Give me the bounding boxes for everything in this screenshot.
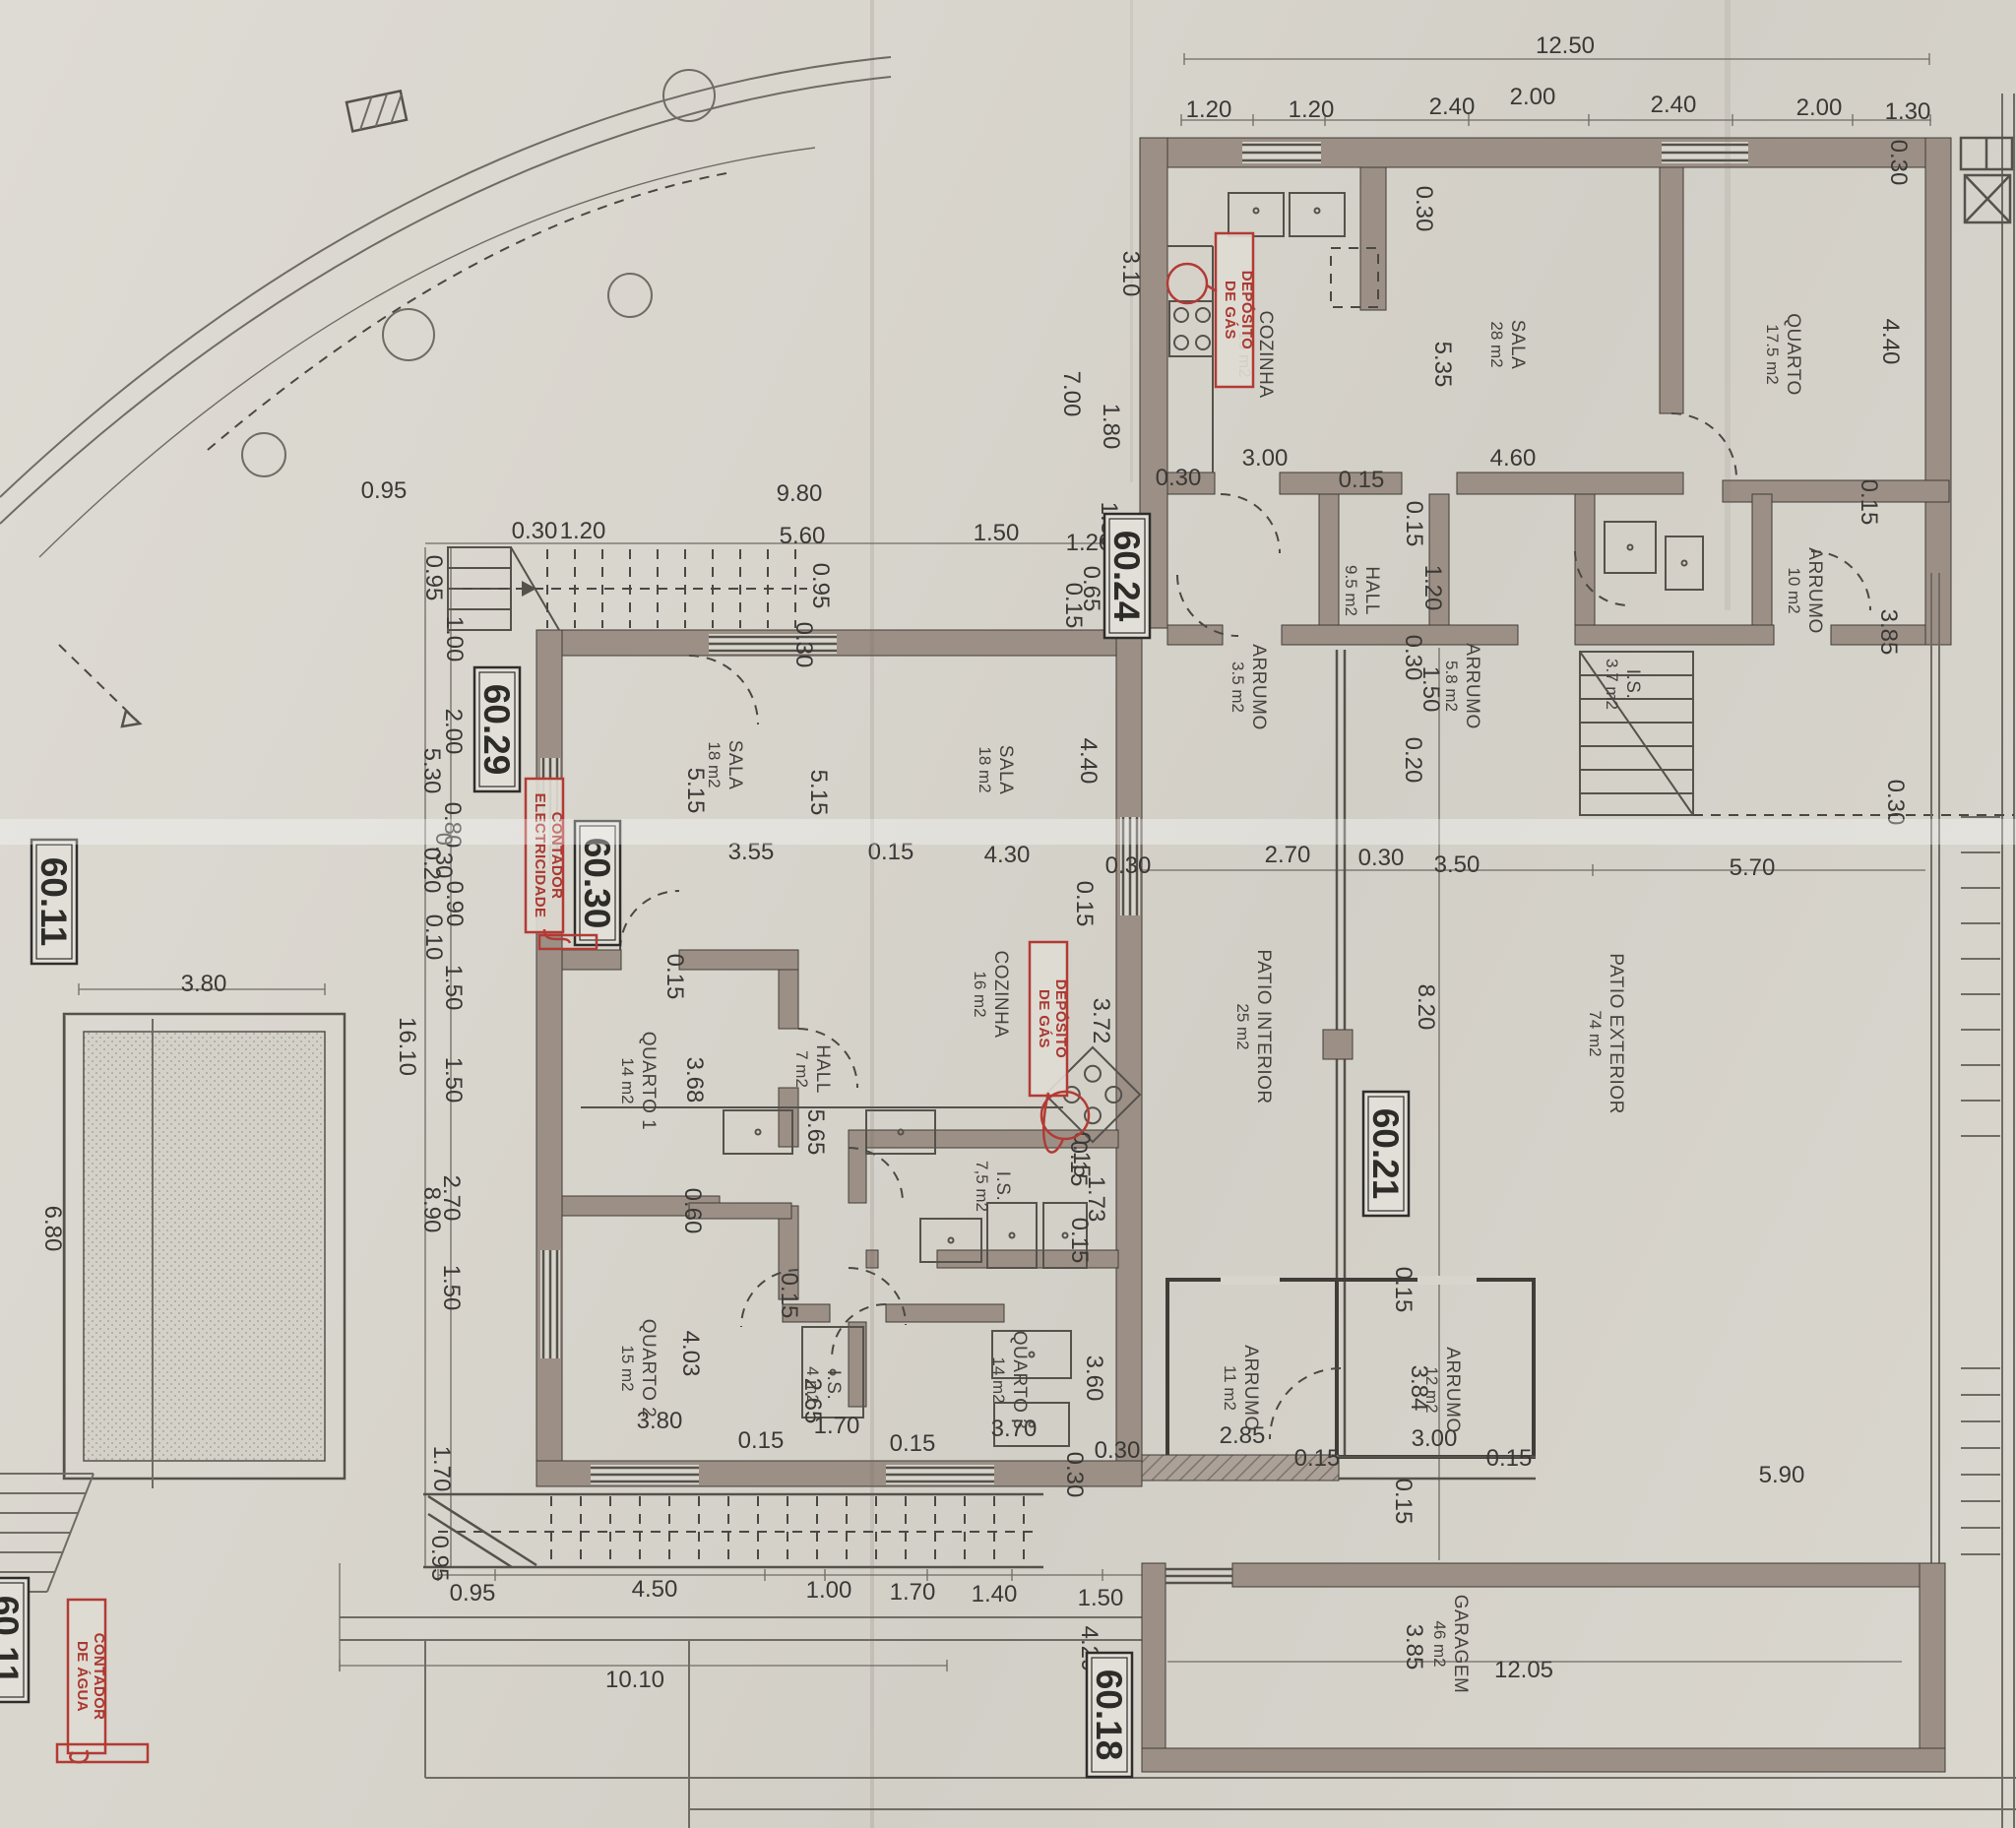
room-area: 25 m2 [1233,1003,1252,1049]
room-name: PATIO EXTERIOR [1606,953,1626,1114]
dimension-label: 0.30 [1411,186,1437,232]
dimension-label: 0.30 [1885,140,1912,186]
dimension-label: 1.70 [814,1413,860,1439]
dimension-label: 3.00 [1242,445,1289,472]
dimension-label: 0.15 [1486,1445,1533,1472]
garden-steps [0,1474,94,1592]
room-name: PATIO INTERIOR [1253,949,1274,1103]
dimension-label: 4.50 [632,1576,678,1603]
dimension-label: 2.00 [1510,84,1556,110]
transformer-symbol [1961,138,2012,222]
dimension-label: 5.35 [1429,342,1456,388]
floor-plan-sheet: 12.501.201.202.402.002.402.001.303.107.0… [0,0,2016,1828]
dimension-label: 5.30 [418,748,445,794]
room-name: GARAGEM [1450,1595,1471,1694]
tree-symbol [608,274,652,317]
room-area: 3.7 m2 [1603,659,1621,710]
dimension-label: 2.70 [1265,842,1311,868]
dimension-label: 1.20 [560,518,606,544]
tree-symbol [383,309,434,360]
room-area: 14 m2 [618,1057,637,1103]
room-name: HALL [812,1044,833,1094]
exterior-stairs-upper [1580,652,2014,815]
elevation-value: 60.18 [1089,1670,1129,1761]
dimension-label: 0.15 [661,954,688,1000]
dimension-label: 0.95 [807,563,834,609]
dimension-label: 0.15 [1071,881,1098,927]
room-name: SALA [724,740,745,790]
room-name: QUARTO 2 [638,1319,659,1418]
dimension-label: 0.15 [1294,1445,1341,1472]
tree-symbol [242,433,285,476]
dimension-label: 1.50 [440,1057,467,1103]
deposito-gas-2-label: DEPÓSITODE GÁS [1030,942,1070,1096]
room-name: I.S. [992,1171,1013,1202]
elevation-marker: 60.21 [1363,1092,1409,1216]
dimension-label: 0.15 [1339,467,1385,493]
room-area: 28 m2 [1487,321,1506,367]
dimension-label: 0.20 [418,848,445,894]
dimension-label: 0.20 [1400,737,1426,784]
dimension-label: 0.95 [450,1580,496,1607]
dimension-label: 0.30 [512,518,558,544]
dimension-label: 0.15 [890,1430,936,1457]
dimension-label: 0.15 [1401,501,1427,547]
dimension-label: 1.20 [1186,96,1232,123]
elevation-value: 60.30 [577,838,617,929]
room-name: SALA [1507,320,1528,370]
gas-tank-symbol [1167,264,1207,303]
dimension-label: 4.03 [677,1331,704,1377]
window [1662,142,1748,163]
room-area: 10 m2 [1785,567,1803,613]
dimension-label: 0.15 [776,1273,802,1319]
dimension-label: 0.30 [1358,845,1405,871]
room-area: 16 m2 [971,971,989,1017]
room-area: 18 m2 [705,741,724,788]
utility-label-line: DEPÓSITO [1052,979,1070,1058]
upper-bath-fixtures [1605,522,1703,590]
dimension-label: 3.85 [1875,609,1902,656]
paper-folds [0,0,2016,1828]
dimension-label: 0.95 [426,1536,453,1582]
dimension-label: 0.95 [361,477,408,504]
neighbor-hatch-upper [1961,817,2000,1136]
room-name: HALL [1361,566,1382,615]
floor-plan-svg: 12.501.201.202.402.002.402.001.303.107.0… [0,0,2016,1828]
room-area: 3.5 m2 [1228,662,1247,713]
dimension-label: 0.15 [1066,1218,1093,1264]
utility-label-line: DE GÁS [1222,281,1238,340]
contador-electricidade-label: CONTADORELECTRICIDADE [526,779,565,932]
dimension-label: 1.20 [1289,96,1335,123]
dimension-label: 1.50 [440,965,467,1011]
dimension-label: 3.72 [1088,998,1114,1044]
dimension-label: 0.60 [679,1188,706,1234]
dimension-label: 1.70 [890,1579,936,1606]
dimension-label: 0.15 [1856,479,1882,526]
dimension-label: 0.30 [1105,852,1152,879]
dimension-label: 4.60 [1490,445,1537,472]
dimension-label: 1.20 [1419,565,1446,611]
dimension-label: 3.50 [1434,851,1480,878]
room-area: 18 m2 [976,746,994,792]
pool [59,645,345,1488]
elevation-marker: 60.18 [1087,1653,1132,1777]
room-name: ARRUMO [1240,1345,1261,1430]
room-area: 74 m2 [1586,1010,1605,1056]
dimension-label: 9.80 [777,480,823,507]
dimension-label: 1.70 [428,1446,455,1492]
utility-label-line: DE GÁS [1036,989,1052,1048]
dimension-label: 0.30 [790,622,817,668]
utility-label-line: DE ÁGUA [74,1641,91,1712]
dimension-label: 7.00 [1058,371,1085,417]
entrance-stairs [448,547,807,630]
room-area: 5.8 m2 [1442,661,1461,712]
dimension-label: 2.40 [1651,92,1697,118]
elevation-marker: 60.29 [474,667,520,791]
dimension-label: 3.68 [681,1057,708,1103]
right-boundary [1961,94,2014,1828]
room-area: 4 m2 [803,1366,822,1404]
dimension-label: 3.85 [1401,1624,1427,1670]
dimension-label: 0.30 [1156,465,1202,491]
room-name: ARRUMO [1442,1347,1463,1432]
dimension-label: 0.15 [1390,1267,1417,1313]
room-name: QUARTO [1783,313,1803,396]
room-name: ARRUMO [1804,547,1825,633]
elevation-value: 60.29 [476,684,517,776]
utility-label-line: DEPÓSITO [1238,271,1256,349]
dimension-label: 12.50 [1536,32,1595,59]
dimension-label: 0.30 [1882,780,1909,826]
window [540,1250,560,1358]
dimension-label: 5.60 [780,523,826,549]
dimension-label: 3.80 [181,971,227,997]
utility-label-line: ELECTRICIDADE [532,793,548,918]
dimension-label: 0.15 [1060,583,1087,629]
room-area: 12 m2 [1422,1366,1441,1413]
dimension-label: 1.50 [1078,1585,1124,1611]
room-area: 7 m2 [792,1050,811,1088]
dimension-label: 5.70 [1730,854,1776,881]
dimension-label: 8.90 [418,1187,445,1233]
dimension-label: 3.60 [1081,1355,1107,1402]
dimension-label: 0.30 [1061,1452,1088,1498]
dimension-label: 5.65 [802,1109,829,1156]
dimension-label: 1.30 [1885,98,1931,125]
elevation-marker: 60.11 [31,840,77,964]
room-area: 14 m2 [989,1356,1008,1403]
garage-door [1165,1569,1232,1583]
elevation-marker: 60.24 [1104,514,1150,638]
room-area: 7,5 m2 [973,1161,991,1212]
elevation-value: 60.11 [33,857,74,947]
room-name: QUARTO 1 [638,1032,659,1130]
hatched-landmark [346,91,407,131]
dimension-label: 6.80 [39,1206,66,1252]
dimension-label: 2.40 [1429,94,1476,120]
dimension-label: 5.90 [1759,1462,1805,1488]
dimension-label: 5.15 [805,770,832,816]
room-name: ARRUMO [1248,644,1269,729]
dimension-label: 0.15 [1390,1479,1417,1525]
room-name: COZINHA [990,951,1011,1039]
dimension-label: 1.00 [806,1577,852,1604]
window [1242,142,1321,163]
dimension-label: 0.95 [420,555,447,601]
bottom-boundaries [340,1617,2016,1828]
room-name: QUARTO 3 [1009,1331,1030,1429]
dimension-label: 2.00 [1796,95,1843,121]
room-name: I.S. [823,1370,844,1401]
tree-symbol [663,70,715,121]
room-area: 46 m2 [1430,1620,1449,1667]
utility-label-line: CONTADOR [91,1633,107,1721]
dimension-label: 1.80 [1098,404,1124,450]
room-name: ARRUMO [1462,643,1482,728]
dimension-label: 1.50 [1417,666,1444,713]
elevation-value: 60.21 [1365,1108,1406,1200]
dimension-label: 10.10 [605,1667,664,1693]
neighbor-hatch-lower [1961,1368,2000,1554]
contador-agua-label: CONTADORDE ÁGUA [68,1600,107,1753]
room-area: 11 m2 [1221,1365,1239,1411]
dimension-label: 1.50 [974,520,1020,546]
deposito-gas-1-label: DEPÓSITODE GÁS [1216,233,1256,387]
dimension-label: 1.50 [438,1265,465,1311]
dimension-label: 0.15 [738,1427,785,1454]
dimension-label: 12.05 [1494,1657,1553,1683]
dimension-label: 0.30 [1095,1437,1141,1464]
column [1323,1030,1353,1059]
dimension-label: 8.20 [1413,984,1439,1031]
dimension-label: 16.10 [394,1017,420,1076]
room-name: COZINHA [1255,311,1276,399]
room-area: 17.5 m2 [1763,324,1782,384]
dimension-label: 0.10 [420,914,447,961]
elevation-value: 60.24 [1106,531,1147,622]
bottom-stairs [423,1494,1043,1567]
dimension-label: 4.40 [1877,319,1904,365]
patio-walls [1323,573,1939,1563]
elevation-marker: 60.11 [0,1578,29,1702]
site-boundary-curves [0,57,891,557]
room-name: I.S. [1622,669,1643,700]
dimension-label: 1.40 [972,1581,1018,1607]
window [591,1465,699,1484]
window [886,1465,994,1484]
dimension-label: 4.30 [984,842,1031,868]
dimension-label: 4.40 [1075,738,1102,785]
room-area: 9.5 m2 [1342,565,1360,616]
dimension-label: 5.15 [682,768,709,814]
dimension-label: 0.15 [1065,1141,1092,1187]
elevation-value: 60.11 [0,1596,26,1685]
dimension-label: 1.00 [441,616,468,662]
room-area: 15 m2 [618,1345,637,1391]
room-name: SALA [995,745,1016,795]
